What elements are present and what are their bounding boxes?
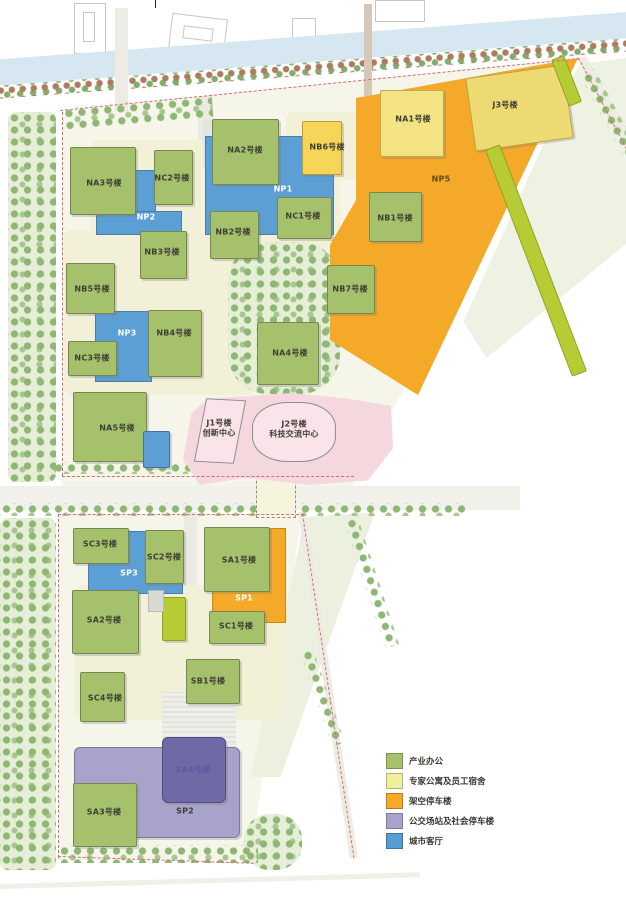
label-j1-name: J1号楼 [203,419,236,429]
site-boundary [62,476,354,477]
legend-swatch-office [386,753,403,769]
label-np5: NP5 [432,175,451,184]
label-nb5: NB5号楼 [74,284,109,295]
east-tree-row-south-a [344,516,399,649]
label-na5: NA5号楼 [99,423,134,434]
label-nb4: NB4号楼 [156,328,191,339]
building-utility [148,590,164,612]
west-tree-strip-south [0,518,56,870]
legend-swatch-bus-station [386,813,403,829]
label-na1: NA1号楼 [395,114,430,125]
label-sa2: SA2号楼 [87,615,122,626]
legend-item-apartment: 专家公寓及员工宿舍 [386,771,494,791]
label-nc2: NC2号楼 [154,173,189,184]
legend-item-office: 产业办公 [386,751,494,771]
legend-swatch-city-hall [386,833,403,849]
label-j2: J2号楼 科技交流中心 [269,420,318,439]
legend-label-apartment: 专家公寓及员工宿舍 [409,775,486,787]
legend-item-city-hall: 城市客厅 [386,831,494,851]
label-j2-name: J2号楼 [269,420,318,430]
building-annex-small [162,597,186,641]
site-boundary [58,514,59,858]
label-j1: J1号楼 创新中心 [203,419,236,438]
legend-item-parking: 架空停车楼 [386,791,494,811]
label-na4: NA4号楼 [272,348,307,359]
site-plan-map: NA3号楼 NC2号楼 NA2号楼 NB6号楼 NA1号楼 J3号楼 NP1 N… [0,0,626,901]
label-sc1: SC1号楼 [219,621,253,632]
building-nb4 [148,310,202,377]
label-sc3: SC3号楼 [83,539,117,550]
context-building [375,0,425,22]
label-nb2: NB2号楼 [215,227,250,238]
legend: 产业办公 专家公寓及员工宿舍 架空停车楼 公交场站及社会停车楼 城市客厅 [386,751,494,851]
legend-label-city-hall: 城市客厅 [409,835,443,847]
label-sp2: SP2 [176,807,194,816]
label-na2: NA2号楼 [227,145,262,156]
label-sa1: SA1号楼 [222,555,257,566]
label-sa3: SA3号楼 [87,807,122,818]
label-nb1: NB1号楼 [377,213,412,224]
site-boundary [62,112,63,476]
label-nb7: NB7号楼 [332,284,367,295]
label-sa4: SA4号楼 [176,765,211,776]
drawing-tick [155,0,156,8]
label-nc1: NC1号楼 [285,211,320,222]
label-np3: NP3 [118,329,137,338]
legend-swatch-parking [386,793,403,809]
label-j2-sub: 科技交流中心 [269,429,318,439]
label-nb6: NB6号楼 [309,142,344,153]
label-nc3: NC3号楼 [74,353,109,364]
west-tree-strip-north [8,112,56,482]
legend-label-office: 产业办公 [409,755,443,767]
bridge-road-west [115,8,128,112]
context-building-core [83,12,95,42]
label-sc2: SC2号楼 [147,552,181,563]
label-na3: NA3号楼 [86,178,121,189]
south-street [0,872,420,889]
building-na5-annex [143,431,170,468]
label-j3: J3号楼 [492,100,517,111]
label-nb3: NB3号楼 [144,247,179,258]
label-sp1: SP1 [235,594,253,603]
label-sb1: SB1号楼 [191,676,225,687]
legend-label-parking: 架空停车楼 [409,795,452,807]
site-boundary [58,514,304,515]
label-sp3: SP3 [120,569,138,578]
legend-swatch-apartment [386,773,403,789]
legend-label-bus-station: 公交场站及社会停车楼 [409,815,494,827]
label-np2: NP2 [137,213,156,222]
label-j1-sub: 创新中心 [203,428,236,438]
label-sc4: SC4号楼 [88,693,122,704]
legend-item-bus-station: 公交场站及社会停车楼 [386,811,494,831]
label-np1: NP1 [274,185,293,194]
